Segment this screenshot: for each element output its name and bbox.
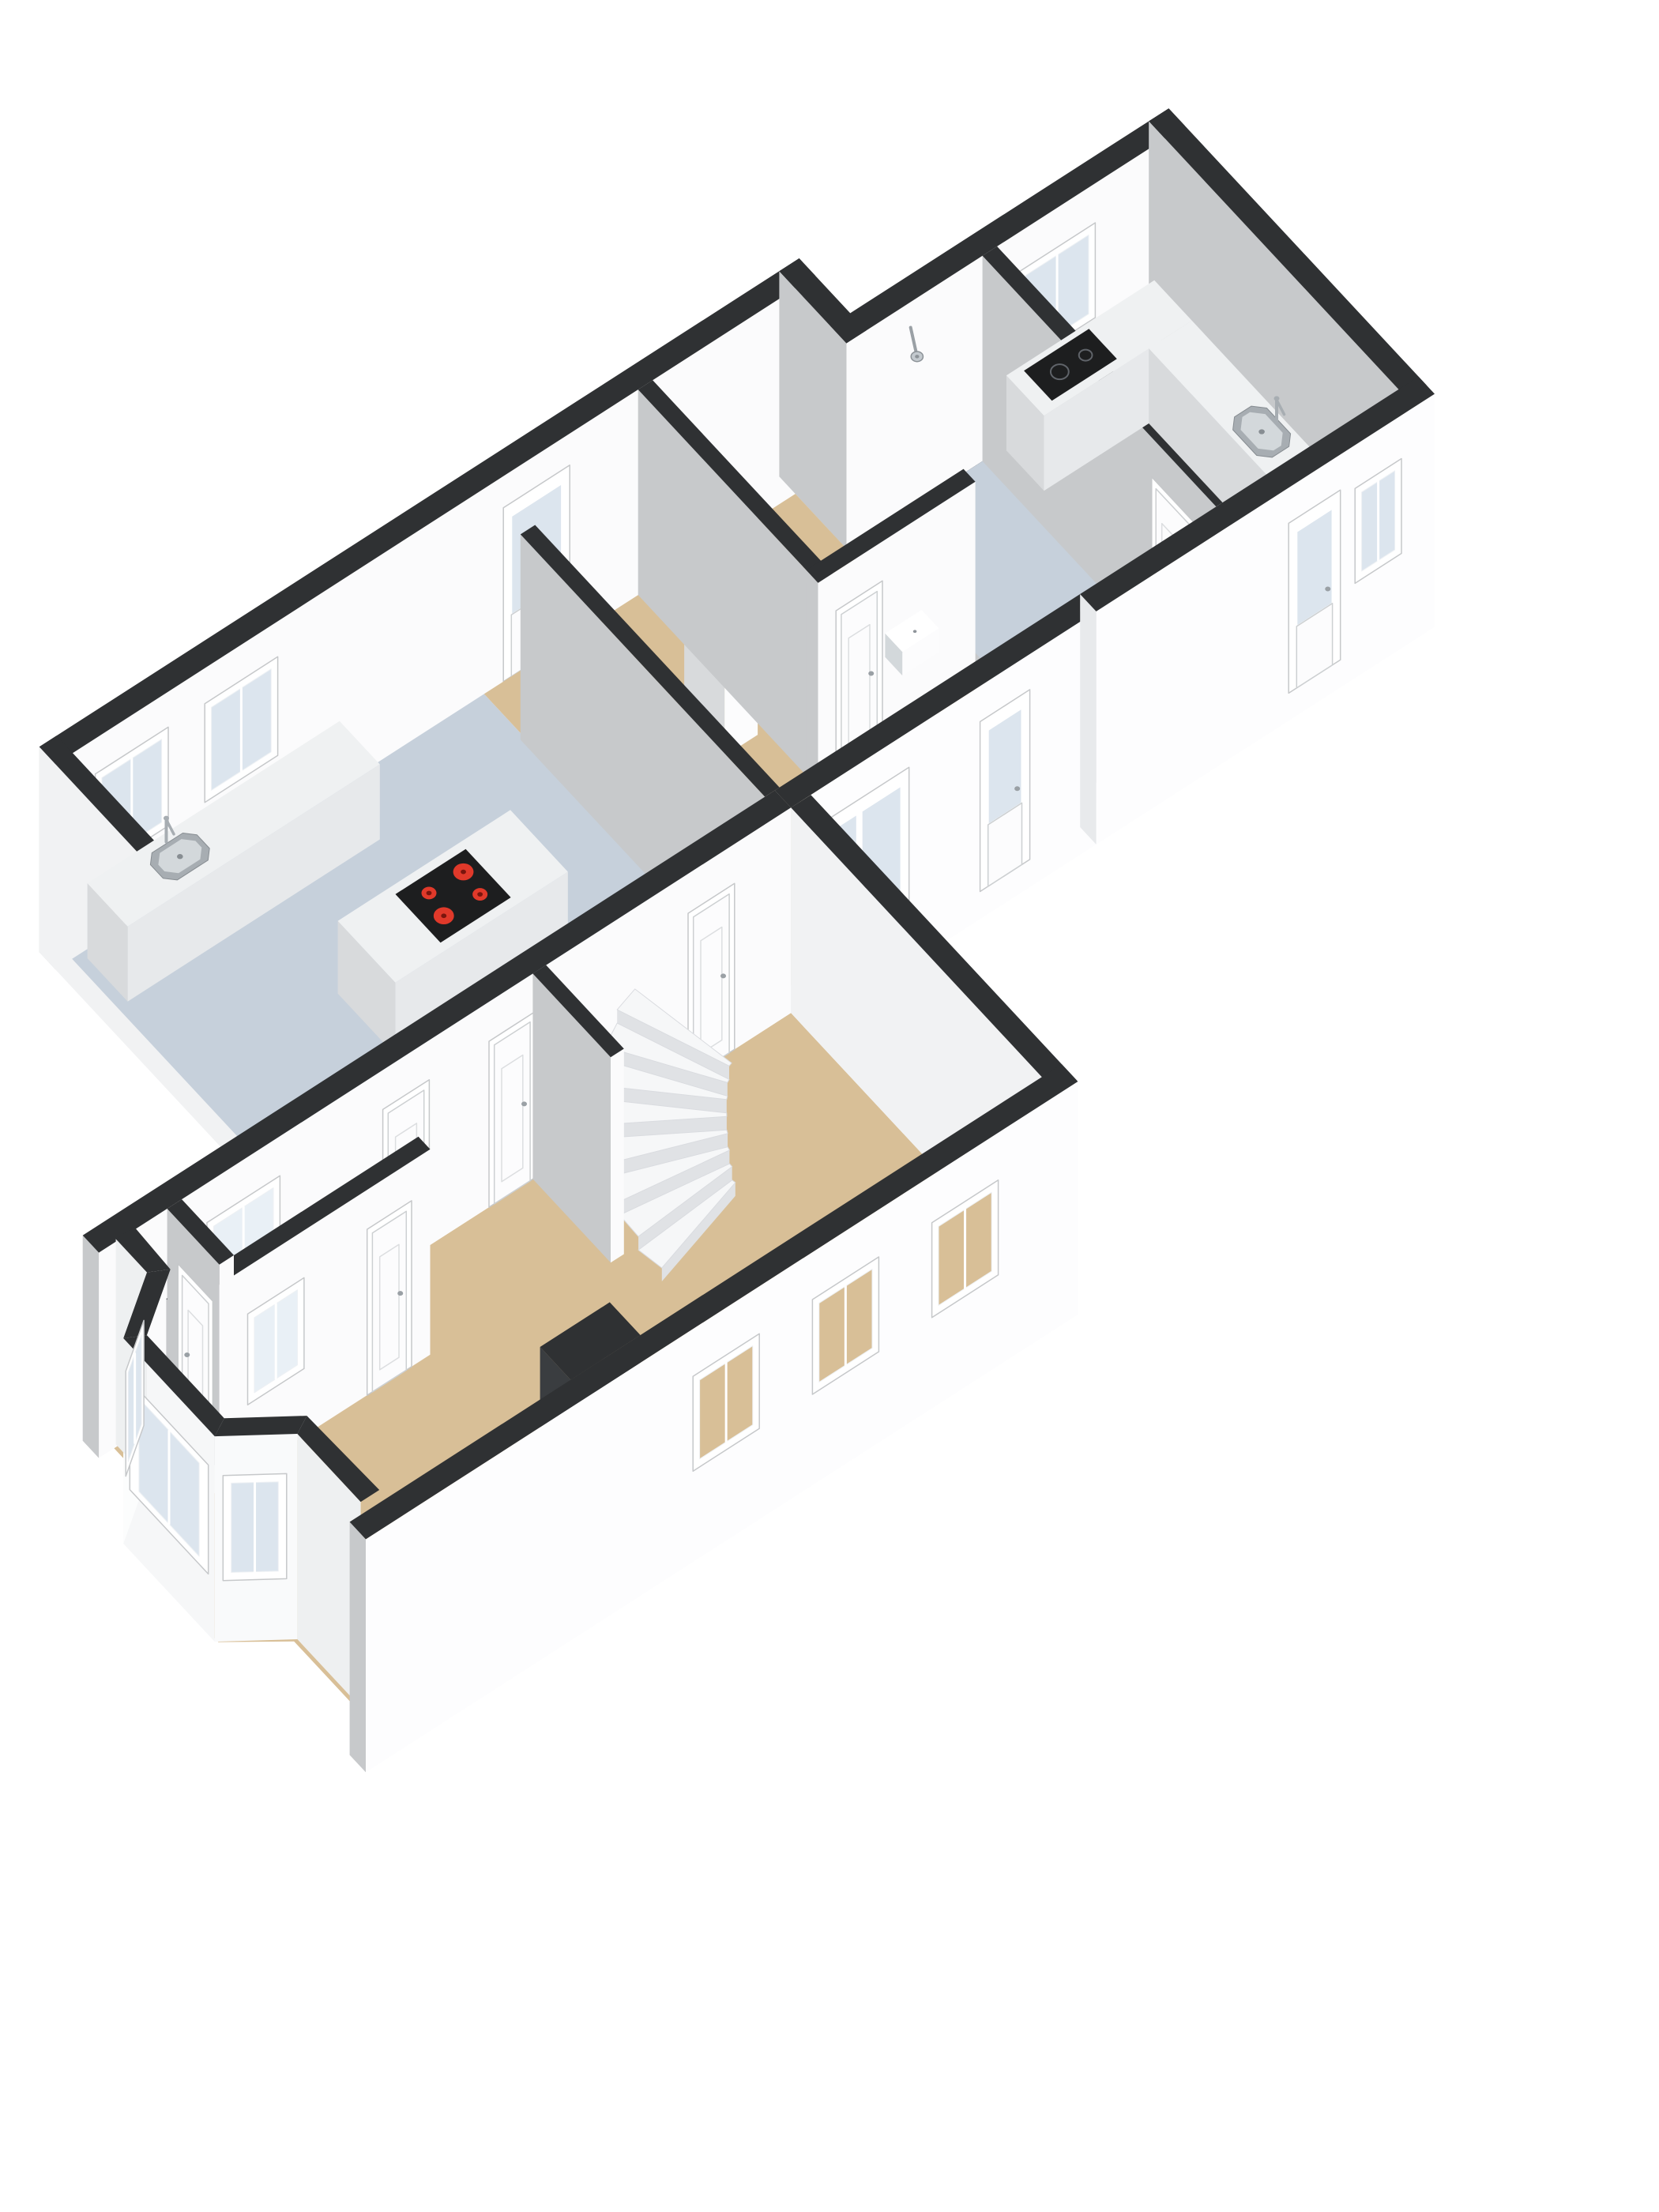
- floor-plan-page: [0, 0, 1659, 2212]
- washbasin-tap: [913, 630, 917, 633]
